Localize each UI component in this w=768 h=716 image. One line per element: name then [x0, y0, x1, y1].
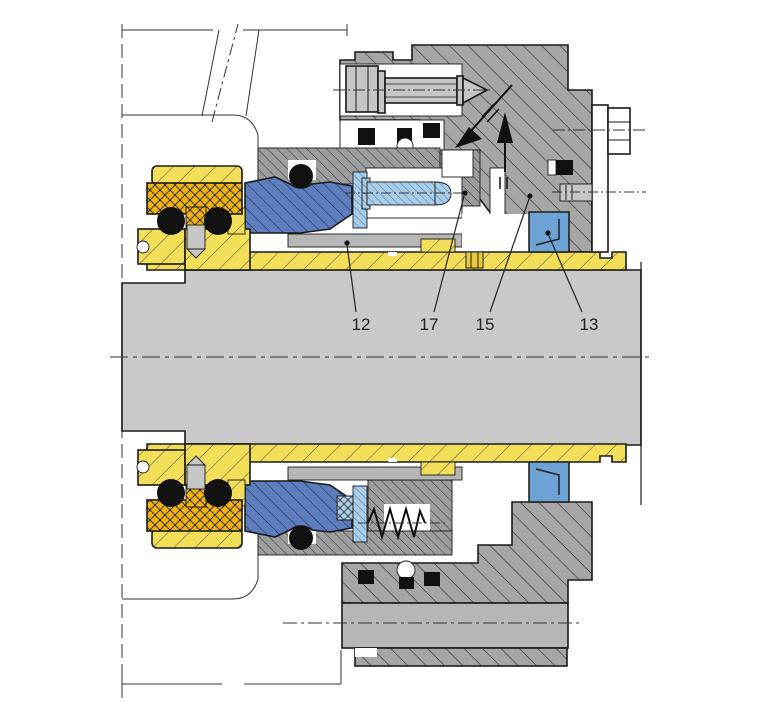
gland-foot-notch [355, 648, 377, 657]
elastomer-cap [152, 166, 242, 185]
o-ring [399, 577, 414, 589]
stud-flange [378, 71, 385, 113]
sleeve-flange-lower [137, 444, 250, 548]
callout-label-13: 13 [580, 315, 599, 334]
housing-bore-top [122, 115, 258, 172]
o-ring [289, 526, 313, 550]
housing-bore-bottom [122, 542, 258, 599]
retainer-disc-lower [353, 486, 367, 542]
break-line [202, 30, 219, 116]
leader-dot-13 [545, 230, 550, 235]
callout-label-12: 12 [352, 315, 371, 334]
clamp-screw [187, 225, 205, 249]
sleeve-step-lower [421, 462, 455, 475]
break-centerline [212, 24, 238, 122]
break-line [246, 30, 259, 116]
technical-diagram-page: 12 17 15 13 [0, 0, 768, 716]
gland-foot-lower [355, 648, 567, 666]
leader-dot-17 [462, 190, 467, 195]
rotating-unit-lower [245, 467, 462, 555]
seat-insert-lower [529, 462, 569, 502]
setting-plate [592, 105, 608, 252]
leader-dot-15 [527, 193, 532, 198]
o-ring [204, 207, 232, 235]
rotating-unit-upper [245, 148, 462, 247]
o-ring [358, 128, 375, 145]
flush-pocket [442, 150, 473, 177]
o-ring [424, 572, 440, 586]
setting-button [137, 241, 149, 253]
o-ring [204, 479, 232, 507]
gland-bolt-lower [342, 603, 568, 648]
setting-button [137, 461, 149, 473]
drive-pin-section [337, 496, 353, 520]
mechanical-seal-cross-section: 12 17 15 13 [0, 0, 768, 716]
stud-hex-head [346, 66, 378, 112]
callout-label-15: 15 [476, 315, 495, 334]
set-screw-body [466, 252, 483, 268]
o-ring [157, 479, 185, 507]
sleeve-set-screw [466, 252, 483, 268]
insert-block [529, 462, 569, 502]
sleeve-notch [388, 252, 397, 256]
screw-tip-pocket [397, 561, 415, 579]
leader-dot-12 [344, 240, 349, 245]
o-ring [358, 570, 374, 584]
seal-chamber-cavity [462, 214, 529, 252]
o-ring [157, 207, 185, 235]
callout-label-17: 17 [420, 315, 439, 334]
o-ring-slot [548, 160, 556, 175]
sleeve-flange-upper [137, 166, 250, 270]
o-ring [289, 164, 313, 188]
elastomer-cap [152, 529, 242, 548]
o-ring [556, 160, 573, 175]
clamp-screw [187, 465, 205, 489]
o-ring [423, 123, 440, 138]
sleeve-notch [388, 458, 397, 462]
nut-body [608, 108, 630, 154]
